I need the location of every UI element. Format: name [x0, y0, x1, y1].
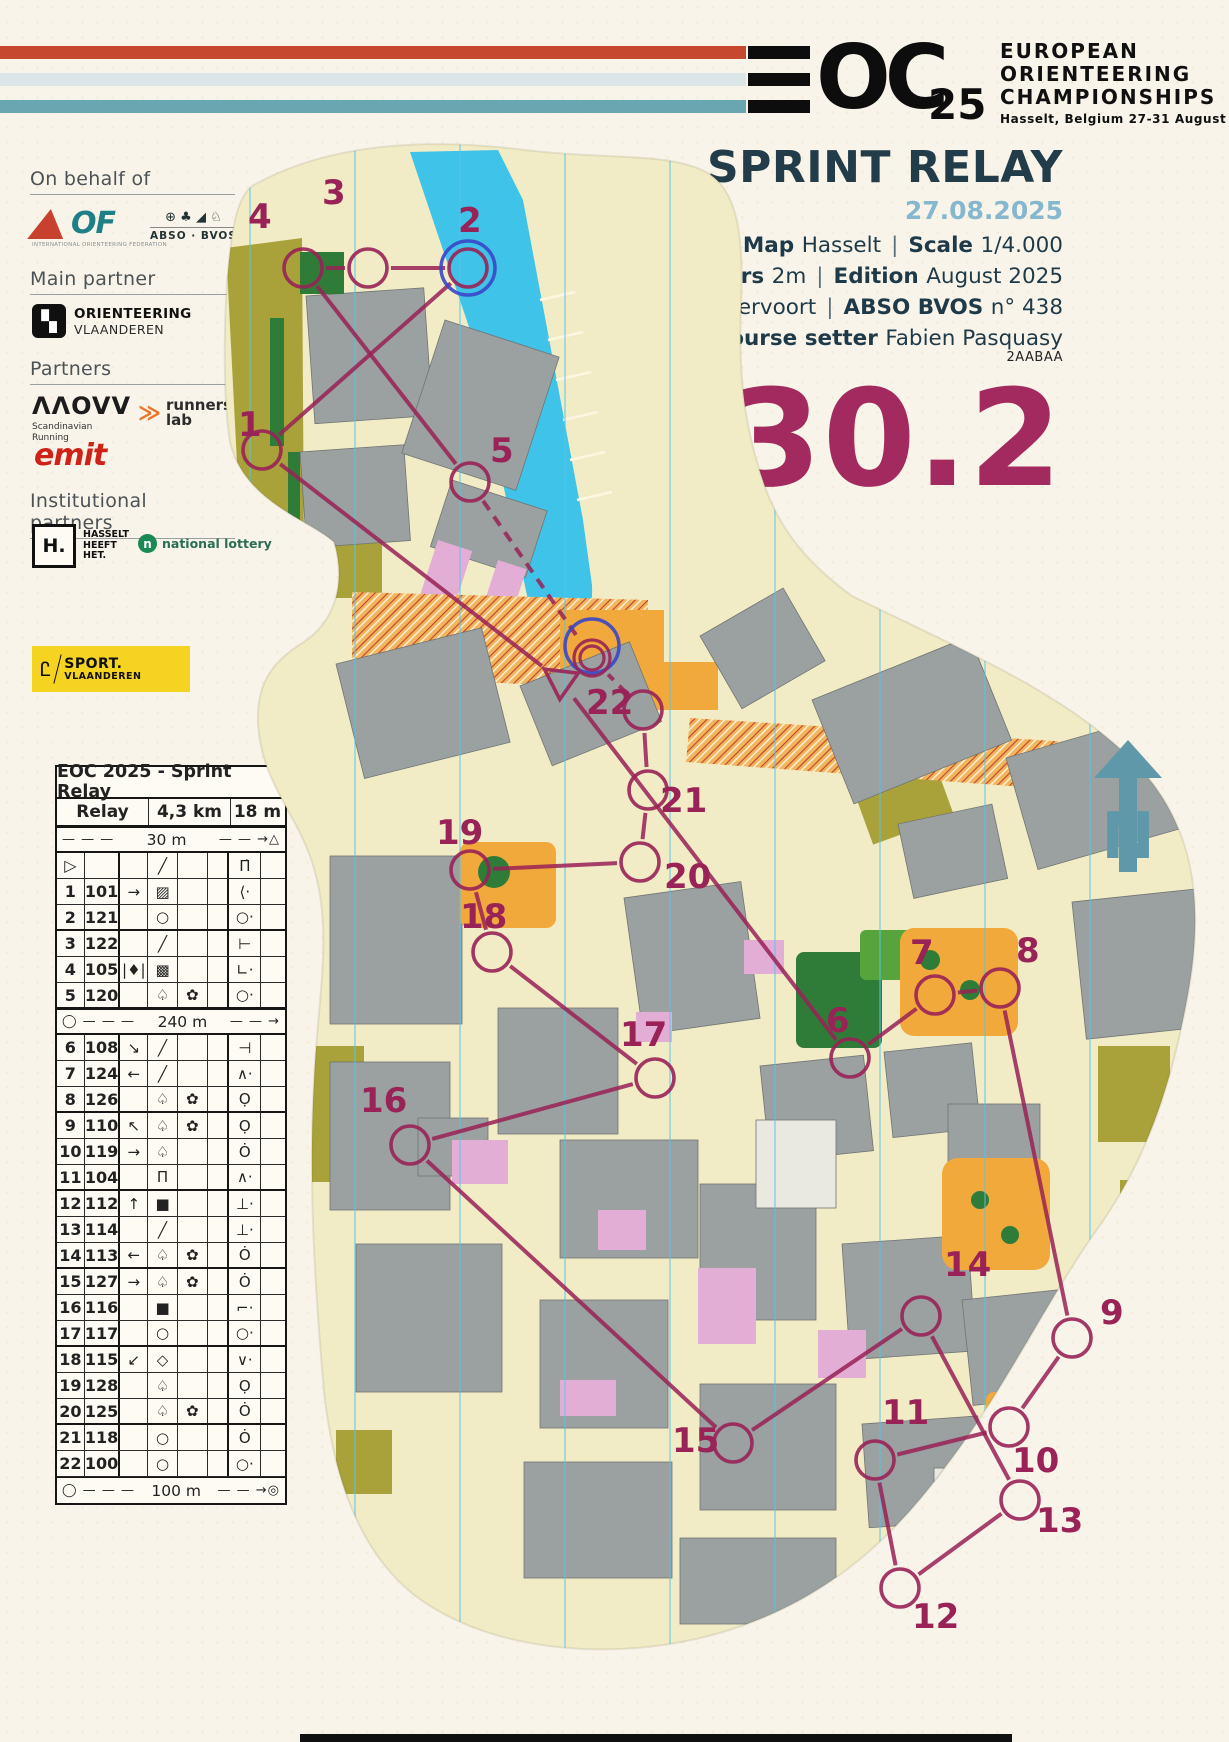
control-number: 7	[910, 933, 934, 973]
control-cell-n: 21	[57, 1425, 85, 1450]
bottom-scan-bar	[300, 1734, 1012, 1742]
control-cell-n: 17	[57, 1321, 85, 1345]
control-cell-n: 9	[57, 1113, 85, 1138]
control-number: 5	[490, 431, 514, 471]
course-leg-line	[919, 1514, 1002, 1575]
venue-line: Hasselt, Belgium 27-31 August	[1000, 112, 1226, 126]
control-cell-n: 22	[57, 1451, 85, 1476]
control-cell-n: 14	[57, 1243, 85, 1267]
control-cell-n: 10	[57, 1139, 85, 1164]
control-number: 4	[248, 197, 272, 237]
control-cell-n: 3	[57, 931, 85, 956]
eoc-logo-oc: OC	[816, 34, 943, 122]
org-line: EUROPEAN	[1000, 40, 1226, 63]
control-cell-n: 5	[57, 983, 85, 1007]
course-leg-line	[644, 733, 646, 767]
lion-icon: Ꮭ	[40, 657, 51, 681]
sv-divider	[54, 654, 62, 683]
control-cell-n: 4	[57, 957, 85, 982]
eoc-logo-bar-icon	[748, 100, 810, 113]
control-cell-n: 20	[57, 1399, 85, 1423]
event-map-sheet: { "header": { "logo_oc": "OC", "logo_yea…	[0, 0, 1229, 1742]
ov-flag-icon: ▚	[32, 304, 66, 338]
org-line: CHAMPIONSHIPS	[1000, 86, 1226, 109]
org-line: ORIENTEERING	[1000, 63, 1226, 86]
control-number: 14	[944, 1245, 991, 1285]
control-cell-n: 1	[57, 879, 85, 904]
championships-wordmark: EUROPEAN ORIENTEERING CHAMPIONSHIPS Hass…	[1000, 40, 1226, 126]
control-cell-n: 19	[57, 1373, 85, 1398]
control-number: 1	[238, 405, 262, 445]
header-stripe-teal	[0, 100, 746, 113]
control-cell-n: 2	[57, 905, 85, 929]
control-cell-n: 6	[57, 1035, 85, 1060]
control-number: 12	[912, 1597, 959, 1637]
control-number: 11	[882, 1393, 929, 1433]
control-number: 10	[1012, 1441, 1059, 1481]
control-number: 2	[458, 201, 482, 241]
control-number: 6	[826, 1001, 850, 1041]
control-cell-n: 7	[57, 1061, 85, 1086]
control-cell-n: 13	[57, 1217, 85, 1242]
control-number: 20	[664, 857, 711, 897]
control-number: 17	[620, 1015, 667, 1055]
control-number: 21	[660, 781, 707, 821]
header-stripe-pale	[0, 73, 746, 86]
iof-triangle-icon	[27, 209, 73, 239]
eoc-logo-bar-icon	[748, 46, 810, 59]
control-cell-n: 8	[57, 1087, 85, 1111]
control-number: 9	[1100, 1293, 1124, 1333]
eoc-logo-year: 25	[928, 84, 986, 126]
control-number: 8	[1016, 931, 1040, 971]
hasselt-h-icon: H.	[32, 524, 76, 568]
control-number: 18	[460, 897, 507, 937]
header-stripe-red	[0, 46, 746, 59]
control-circle	[1053, 1319, 1091, 1357]
control-cell-n: 16	[57, 1295, 85, 1320]
control-number: 15	[672, 1421, 719, 1461]
movv-caption1: Scandinavian	[32, 422, 92, 432]
course-leg-line	[1022, 1357, 1058, 1408]
control-circle	[1001, 1481, 1039, 1519]
control-cell-n: 12	[57, 1191, 85, 1216]
eoc-logo-bar-icon	[748, 73, 810, 86]
course-leg-line	[958, 990, 977, 992]
orienteering-map: 12345678910111213141516171819202122 N	[85, 130, 1229, 1710]
control-cell-n: 11	[57, 1165, 85, 1189]
control-number: 19	[436, 813, 483, 853]
control-number: 16	[360, 1081, 407, 1121]
svg-text:N: N	[1101, 800, 1155, 874]
control-number: 13	[1036, 1501, 1083, 1541]
control-number: 22	[586, 683, 633, 723]
control-number: 3	[322, 173, 346, 213]
control-cell-n: 18	[57, 1347, 85, 1372]
control-cell-n: 15	[57, 1269, 85, 1294]
control-cell-n: ▷	[57, 853, 85, 878]
